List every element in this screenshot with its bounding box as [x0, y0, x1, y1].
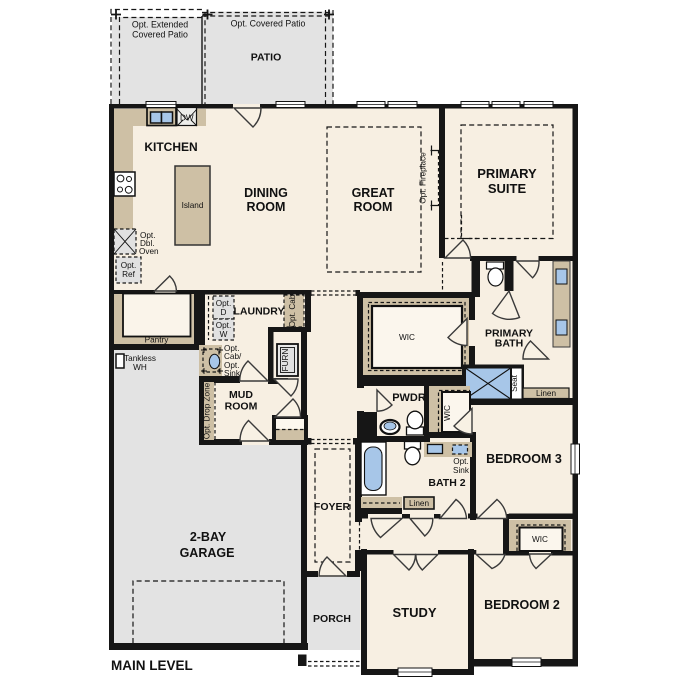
svg-text:MUD: MUD: [229, 389, 253, 401]
svg-text:2-BAY: 2-BAY: [190, 530, 227, 544]
svg-text:PATIO: PATIO: [251, 52, 282, 64]
svg-text:Opt. Drop Zone: Opt. Drop Zone: [203, 382, 212, 439]
svg-text:W: W: [220, 330, 228, 339]
svg-text:Opt. Cab: Opt. Cab: [288, 294, 297, 327]
svg-text:WH: WH: [133, 363, 147, 372]
svg-text:WIC: WIC: [399, 333, 415, 342]
svg-text:GREAT: GREAT: [352, 186, 395, 200]
svg-text:ROOM: ROOM: [225, 401, 258, 413]
svg-text:Opt. Fireplace: Opt. Fireplace: [419, 152, 428, 204]
svg-text:Opt.: Opt.: [453, 457, 468, 466]
svg-text:ROOM: ROOM: [247, 200, 286, 214]
svg-text:MAIN LEVEL: MAIN LEVEL: [111, 658, 193, 673]
svg-text:Sink: Sink: [453, 466, 470, 475]
svg-text:PRIMARY: PRIMARY: [477, 166, 537, 181]
svg-text:KITCHEN: KITCHEN: [144, 140, 197, 154]
svg-text:Opt.: Opt.: [216, 321, 231, 330]
svg-text:Covered Patio: Covered Patio: [132, 30, 188, 40]
svg-text:Pantry: Pantry: [145, 336, 170, 345]
svg-text:Tankless: Tankless: [124, 354, 156, 363]
svg-text:Opt. Extended: Opt. Extended: [132, 20, 188, 30]
svg-text:BEDROOM 2: BEDROOM 2: [484, 598, 560, 612]
svg-text:Sink: Sink: [224, 369, 241, 378]
svg-text:WIC: WIC: [532, 535, 548, 544]
svg-text:Linen: Linen: [536, 389, 556, 398]
svg-text:ROOM: ROOM: [354, 200, 393, 214]
svg-text:Ref: Ref: [122, 270, 135, 279]
svg-text:Island: Island: [182, 201, 204, 210]
svg-text:Oven: Oven: [139, 247, 159, 256]
svg-text:GARAGE: GARAGE: [180, 546, 235, 560]
svg-text:Opt.: Opt.: [216, 299, 231, 308]
svg-text:LAUNDRY: LAUNDRY: [234, 306, 285, 318]
svg-text:Opt.: Opt.: [121, 261, 136, 270]
svg-text:FOYER: FOYER: [314, 501, 351, 513]
svg-text:Opt. Covered Patio: Opt. Covered Patio: [231, 19, 306, 29]
svg-text:DW: DW: [180, 114, 194, 123]
svg-text:PWDR: PWDR: [392, 392, 426, 404]
svg-text:Cab/: Cab/: [224, 352, 242, 361]
svg-text:WIC: WIC: [443, 405, 452, 421]
svg-text:BEDROOM 3: BEDROOM 3: [486, 452, 562, 466]
svg-text:PORCH: PORCH: [313, 613, 351, 625]
svg-text:DINING: DINING: [244, 186, 288, 200]
svg-text:STUDY: STUDY: [392, 605, 436, 620]
svg-text:Seat: Seat: [510, 374, 519, 392]
svg-text:BATH: BATH: [495, 338, 523, 350]
svg-text:BATH 2: BATH 2: [428, 477, 465, 489]
svg-text:SUITE: SUITE: [488, 181, 527, 196]
svg-text:FURN: FURN: [281, 349, 290, 372]
svg-text:D: D: [221, 308, 227, 317]
svg-text:Linen: Linen: [409, 499, 429, 508]
